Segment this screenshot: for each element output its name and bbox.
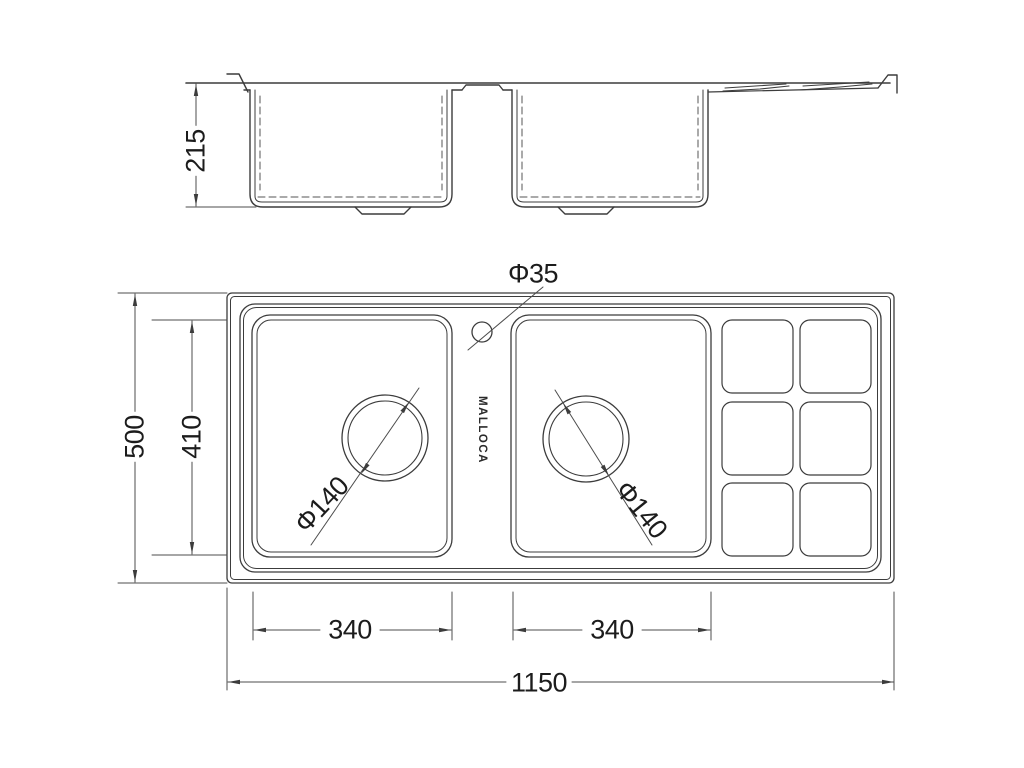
brand-text: MALLOCA bbox=[476, 396, 488, 464]
side-bowl-right bbox=[512, 90, 708, 214]
dim-bowl-left-width-label: 340 bbox=[325, 617, 375, 644]
side-view bbox=[186, 74, 897, 214]
drainboard-grid bbox=[722, 320, 871, 556]
dim-bowl-right-width-label: 340 bbox=[587, 617, 637, 644]
dim-overall-width-label: 1150 bbox=[508, 670, 570, 697]
bowl-right bbox=[511, 315, 711, 557]
side-bowl-left bbox=[250, 90, 452, 214]
dim-inner-depth-label: 410 bbox=[179, 412, 206, 462]
sink-drawing bbox=[0, 0, 1024, 768]
dimension-lines bbox=[118, 84, 894, 690]
dim-overall-depth-label: 500 bbox=[122, 412, 149, 462]
plan-view bbox=[227, 293, 894, 583]
technical-drawing-canvas: 215 500 410 340 340 1150 Φ35 Φ140 Φ140 M… bbox=[0, 0, 1024, 768]
dim-faucet-hole-label: Φ35 bbox=[505, 261, 561, 288]
dim-bowl-depth-label: 215 bbox=[183, 126, 210, 176]
